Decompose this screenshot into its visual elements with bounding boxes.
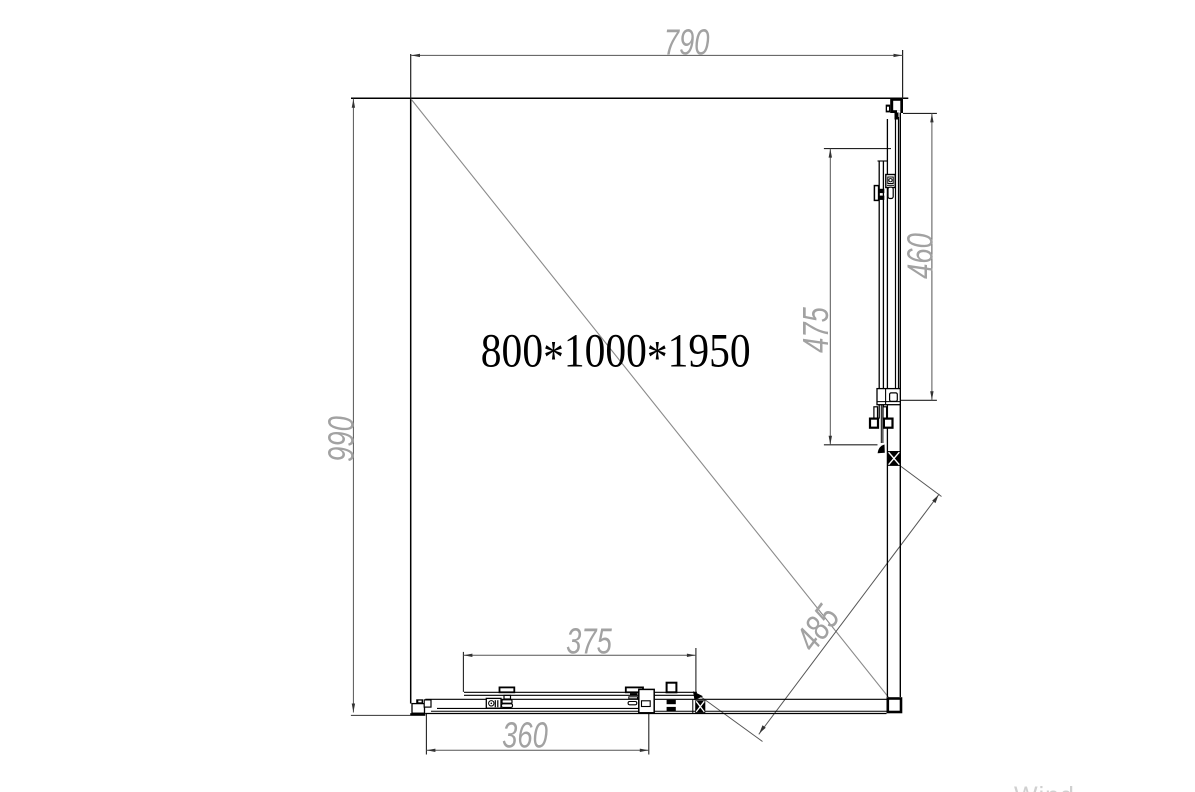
svg-text:990: 990 <box>321 416 362 462</box>
svg-text:460: 460 <box>900 233 941 279</box>
svg-text:Wind: Wind <box>1014 782 1075 792</box>
svg-text:475: 475 <box>795 307 836 353</box>
svg-text:375: 375 <box>566 621 612 662</box>
svg-text:800*1000*1950: 800*1000*1950 <box>481 324 751 384</box>
svg-text:360: 360 <box>502 715 548 756</box>
svg-text:790: 790 <box>664 22 710 63</box>
